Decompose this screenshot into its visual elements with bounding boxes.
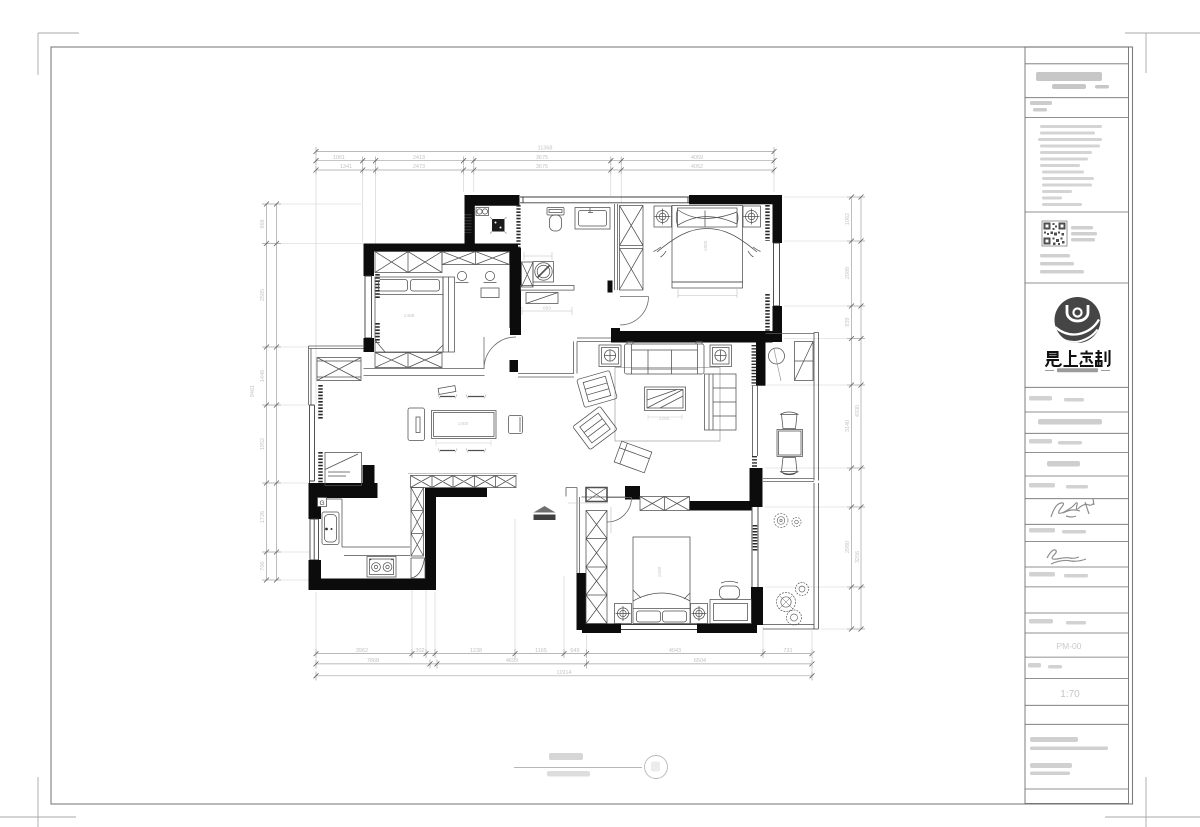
svg-text:1341: 1341 (340, 164, 352, 170)
svg-text:1500: 1500 (657, 566, 663, 577)
svg-text:3140: 3140 (845, 420, 851, 432)
svg-text:1061: 1061 (333, 155, 345, 161)
svg-text:6504: 6504 (694, 658, 706, 664)
svg-text:839: 839 (845, 317, 851, 326)
svg-text:1238: 1238 (470, 648, 482, 654)
svg-text:731: 731 (783, 648, 792, 654)
svg-text:1165: 1165 (535, 648, 547, 654)
svg-text:7868: 7868 (367, 658, 379, 664)
svg-text:2088: 2088 (845, 267, 851, 279)
svg-text:1488: 1488 (404, 313, 415, 319)
svg-text:3256: 3256 (855, 551, 861, 563)
svg-text:G: G (319, 500, 324, 507)
svg-text:1800: 1800 (703, 240, 709, 251)
svg-text:11914: 11914 (557, 670, 572, 676)
svg-text:2473: 2473 (413, 164, 425, 170)
svg-text:302: 302 (415, 648, 424, 654)
svg-text:1062: 1062 (845, 213, 851, 225)
svg-text:3962: 3962 (356, 648, 368, 654)
svg-text:4699: 4699 (506, 658, 518, 664)
svg-text:2585: 2585 (260, 289, 266, 301)
svg-text:9461: 9461 (250, 385, 256, 397)
svg-text:PM-00: PM-00 (1056, 641, 1081, 651)
svg-text:1726: 1726 (260, 511, 266, 523)
svg-text:2980: 2980 (845, 541, 851, 553)
svg-text:1448: 1448 (260, 370, 266, 382)
svg-text:1400: 1400 (458, 421, 469, 427)
svg-text:700: 700 (260, 561, 266, 570)
svg-text:968: 968 (260, 219, 266, 228)
svg-text:4043: 4043 (669, 648, 681, 654)
svg-text:1952: 1952 (260, 438, 266, 450)
svg-text:2413: 2413 (413, 155, 425, 161)
svg-text:649: 649 (570, 648, 579, 654)
svg-text:4330: 4330 (855, 405, 861, 417)
svg-text:1:70: 1:70 (1060, 689, 1080, 700)
svg-text:4052: 4052 (691, 164, 703, 170)
svg-text:3675: 3675 (536, 164, 548, 170)
svg-text:3675: 3675 (536, 155, 548, 161)
svg-text:11368: 11368 (538, 146, 553, 152)
svg-text:4059: 4059 (691, 155, 703, 161)
svg-text:850: 850 (543, 306, 551, 312)
